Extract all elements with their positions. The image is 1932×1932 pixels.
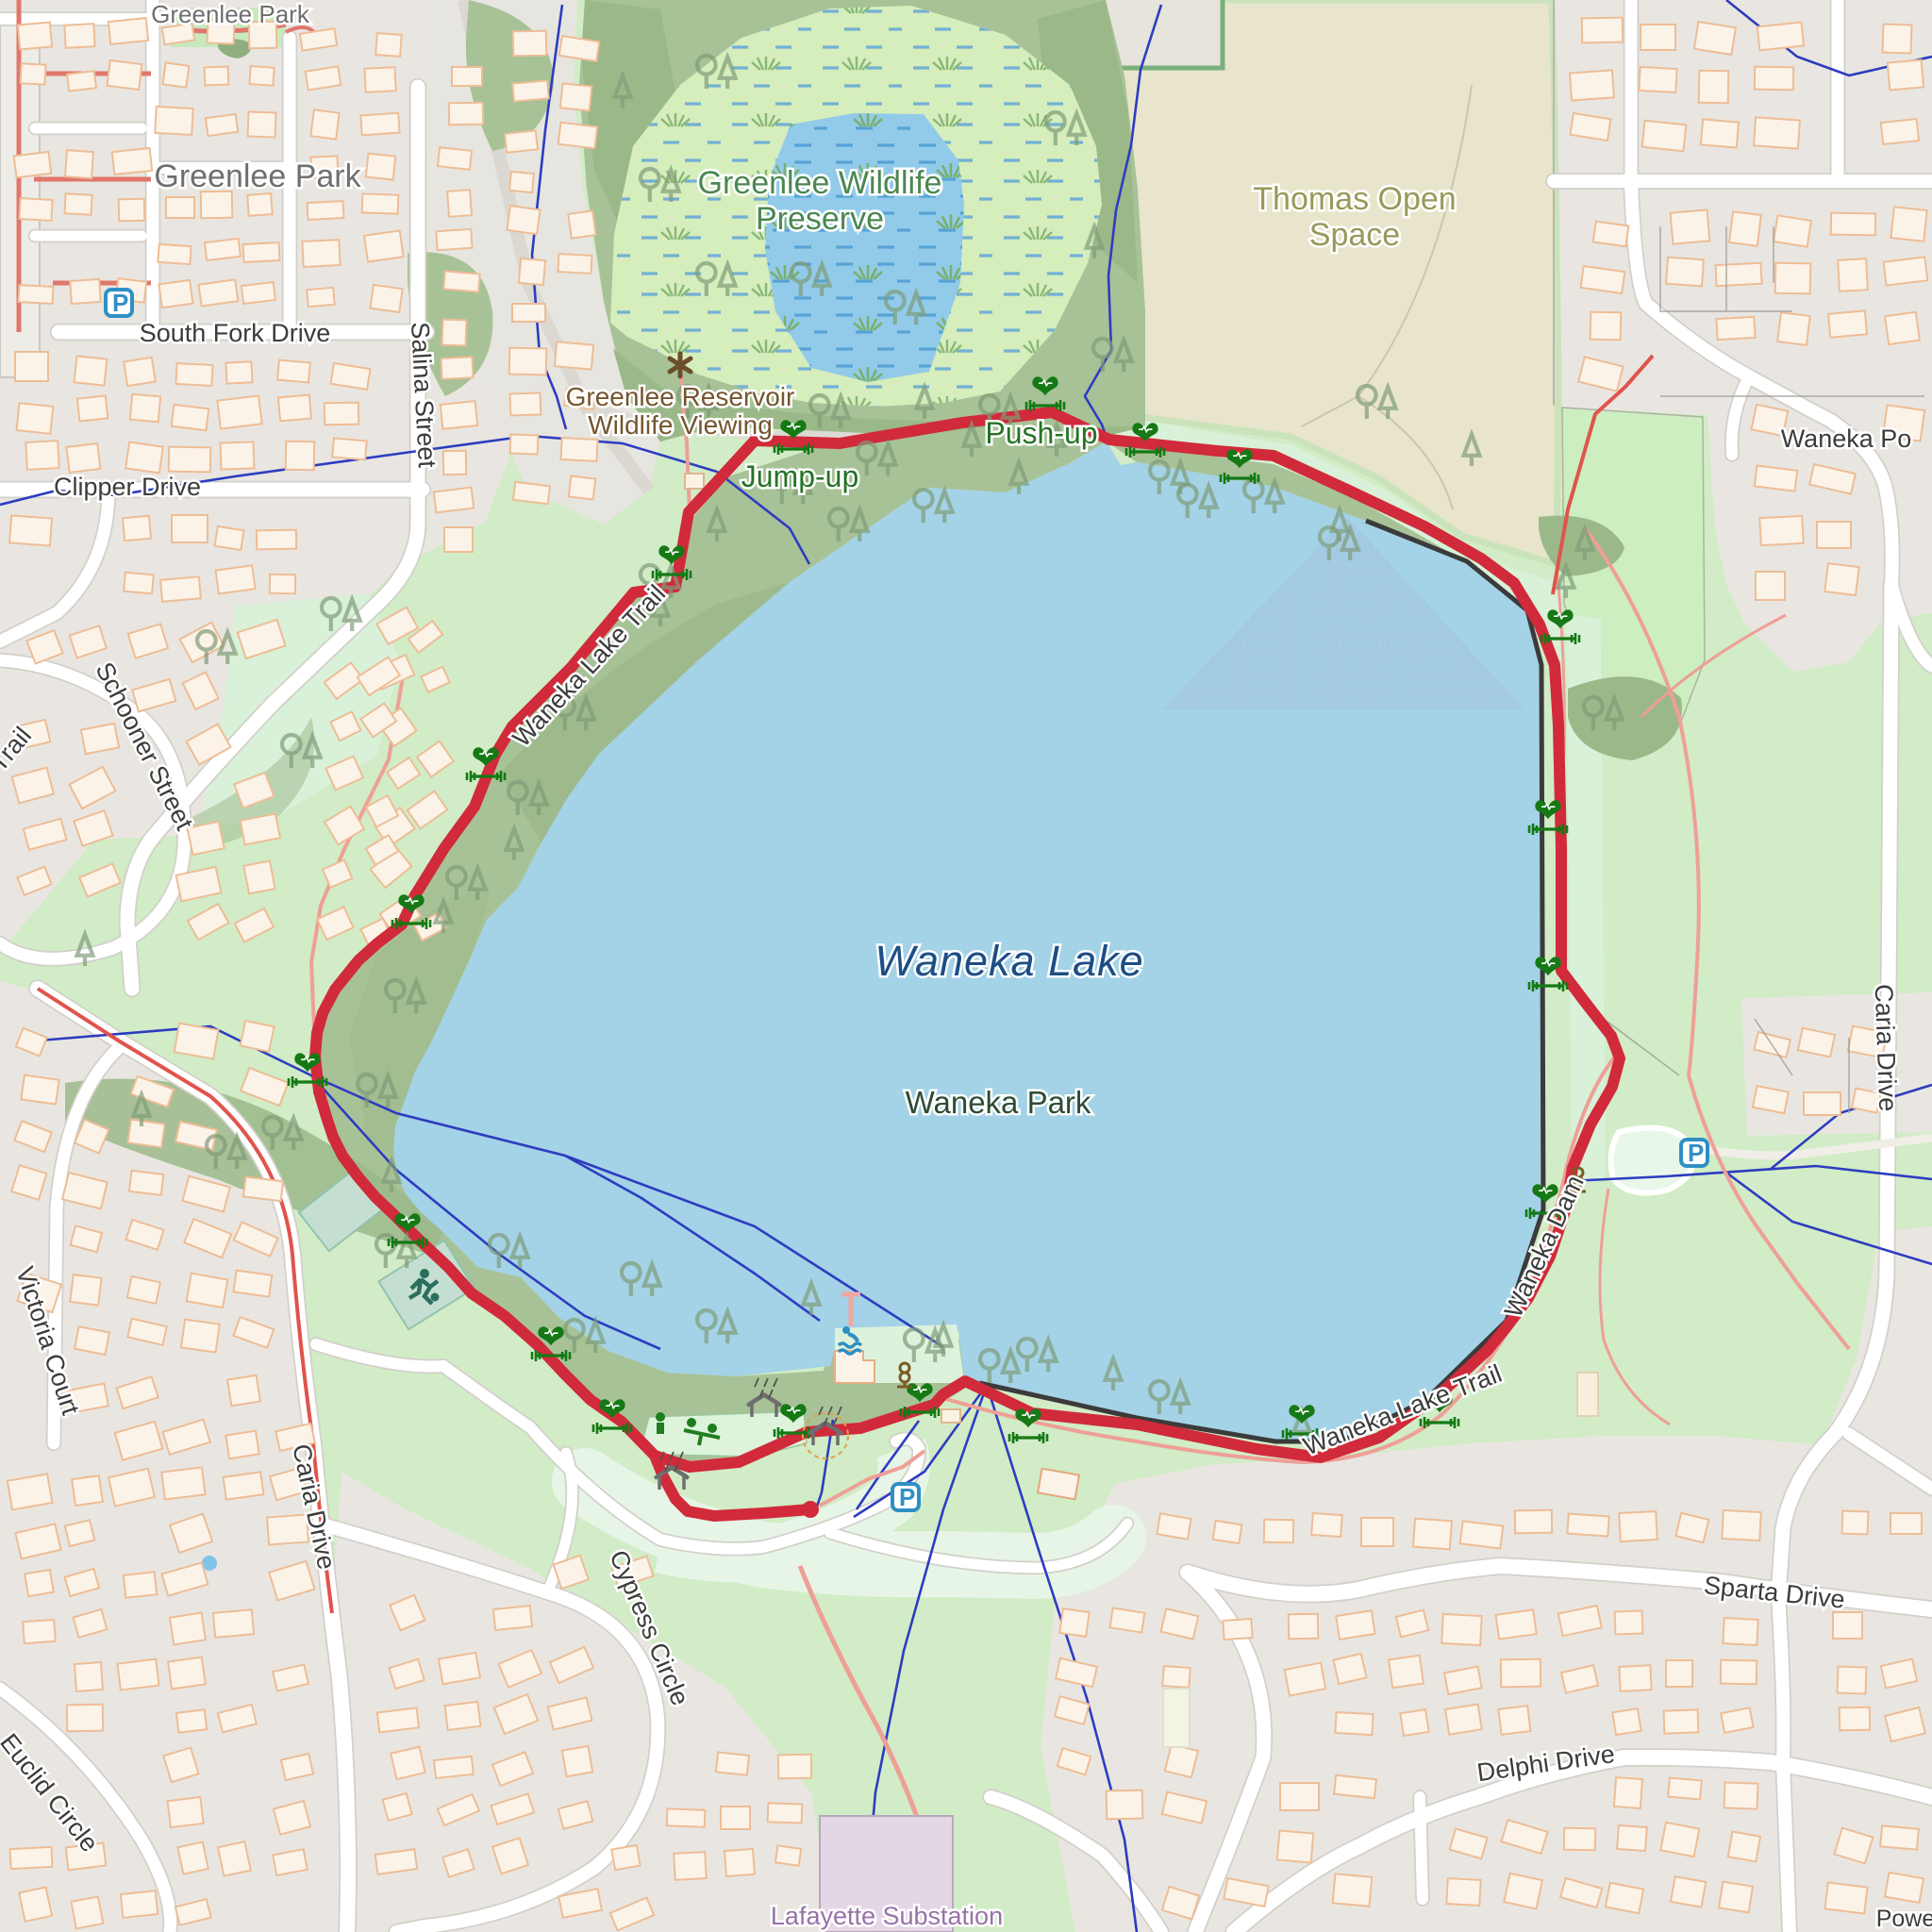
svg-text:Waneka Lake: Waneka Lake: [874, 937, 1143, 985]
svg-text:Caria Drive: Caria Drive: [1870, 984, 1903, 1112]
svg-text:South Fork Drive: South Fork Drive: [140, 319, 331, 347]
svg-text:Space: Space: [1309, 217, 1400, 253]
svg-text:Preserve: Preserve: [756, 201, 884, 237]
svg-text:Greenlee Park: Greenlee Park: [154, 158, 361, 194]
svg-text:P: P: [899, 1483, 915, 1511]
svg-text:Clipper Drive: Clipper Drive: [54, 473, 201, 501]
svg-text:Waneka Po: Waneka Po: [1781, 425, 1912, 453]
svg-text:Greenlee Reservoir: Greenlee Reservoir: [566, 382, 795, 411]
svg-text:Greenlee Wildlife: Greenlee Wildlife: [698, 165, 942, 201]
svg-text:P: P: [1688, 1139, 1704, 1167]
svg-text:Lafayette Substation: Lafayette Substation: [771, 1902, 1003, 1930]
svg-text:Jump-up: Jump-up: [741, 459, 859, 493]
svg-text:Greenlee Park: Greenlee Park: [151, 0, 310, 28]
svg-text:Powe: Powe: [1876, 1906, 1932, 1932]
svg-text:Waneka Park: Waneka Park: [906, 1085, 1091, 1120]
svg-text:P: P: [112, 289, 128, 317]
svg-text:Wildlife Viewing: Wildlife Viewing: [588, 410, 773, 440]
svg-text:Push-up: Push-up: [985, 416, 1097, 450]
svg-text:Thomas Open: Thomas Open: [1253, 181, 1456, 217]
